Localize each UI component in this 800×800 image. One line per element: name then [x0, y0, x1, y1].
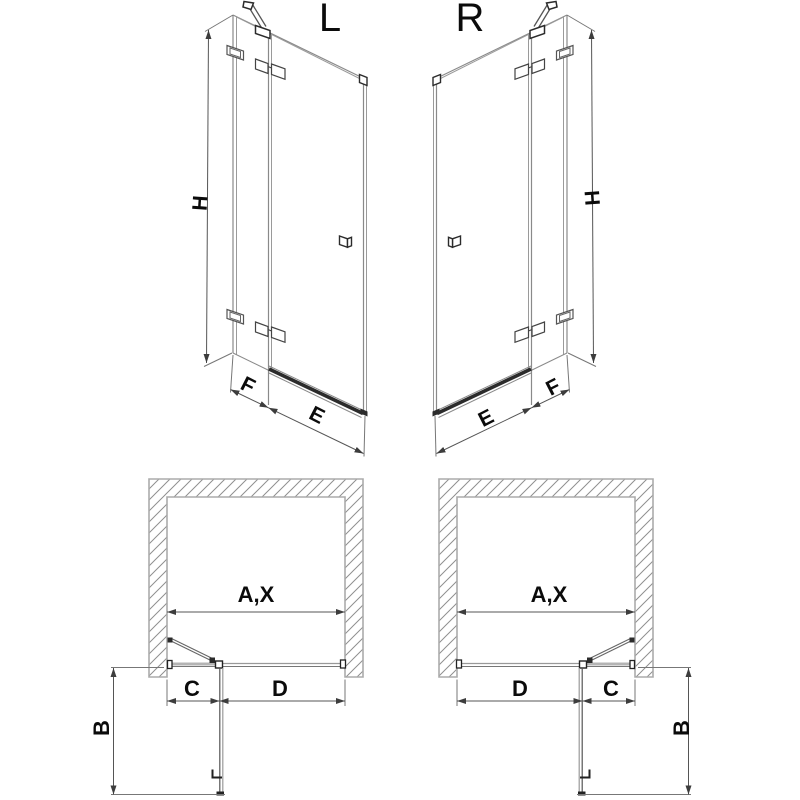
right-3d-view: R H F E: [433, 0, 604, 457]
variant-label-right: R: [456, 0, 485, 40]
door-segment-dim-label-right: D: [512, 676, 528, 701]
fixed-segment-dim-label-left: C: [184, 676, 200, 701]
fixed-width-dim-label-right: F: [542, 374, 564, 400]
door-width-dim-label-right: E: [475, 405, 498, 432]
opening-dim-label-left: A,X: [238, 582, 275, 607]
left-3d-view: L H F E: [188, 0, 367, 457]
left-plan-view: A,X C D B: [89, 479, 363, 796]
projection-dim-label-left: B: [89, 720, 114, 736]
projection-dim-label-right: B: [669, 720, 694, 736]
diagram-svg: L H F E R H F E A,X C D B A,X D C B: [0, 0, 800, 800]
door-segment-dim-label-left: D: [272, 676, 288, 701]
height-dim-label-right: H: [580, 190, 604, 207]
height-dim-label-left: H: [188, 195, 212, 212]
fixed-segment-dim-label-right: C: [603, 676, 619, 701]
variant-label-left: L: [319, 0, 341, 40]
fixed-width-dim-label-left: F: [237, 372, 259, 398]
opening-dim-label-right: A,X: [531, 582, 568, 607]
right-plan-view: A,X D C B: [439, 479, 694, 796]
shower-door-technical-diagram: L H F E R H F E A,X C D B A,X D C B: [0, 0, 800, 800]
door-width-dim-label-left: E: [305, 402, 328, 429]
